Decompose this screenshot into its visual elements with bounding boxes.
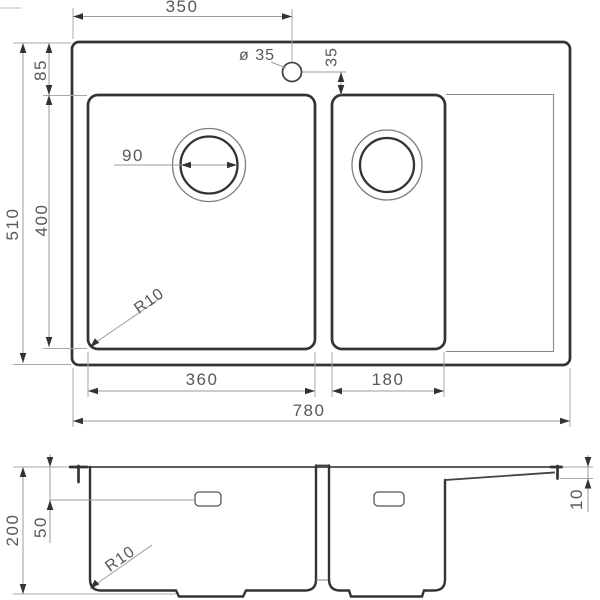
dim-rim-inset: 85 (31, 43, 52, 95)
section-half-bowl (329, 466, 445, 597)
dim-overall-width-label: 780 (293, 401, 326, 420)
dim-bowl-depth-label: 400 (32, 204, 51, 237)
dim-plan-corner-radius: R10 (90, 285, 168, 347)
dim-faucet-diameter-label: ø 35 (239, 47, 275, 64)
dim-overall-depth-label: 510 (3, 208, 22, 241)
plan-half-bowl (332, 95, 445, 349)
dim-plan-corner-radius-label: R10 (131, 285, 167, 317)
dim-overflow-offset-label: 50 (31, 516, 50, 538)
sink-technical-drawing: 350 ø 35 35 85 (0, 0, 600, 600)
dim-faucet-offset: 35 (302, 47, 346, 95)
dim-bowl-depth: 400 (32, 95, 52, 347)
dim-section-corner-radius-label: R10 (102, 543, 138, 575)
plan-outer-rim (72, 42, 570, 365)
faucet-hole (283, 63, 302, 82)
dim-half-bowl-width-label: 180 (372, 370, 405, 389)
dim-rim-inset-label: 85 (31, 59, 50, 81)
plan-drainboard-outline (446, 95, 554, 352)
section-drainboard-slope (445, 473, 554, 481)
half-drain-hole (360, 138, 414, 192)
section-view: 200 50 10 R10 (3, 454, 593, 597)
plan-view: 350 ø 35 35 85 (3, 0, 570, 427)
half-drain-flange (352, 130, 422, 200)
plan-main-bowl (88, 95, 315, 349)
dim-section-corner-radius: R10 (90, 543, 152, 589)
dim-faucet-diameter: ø 35 (239, 47, 286, 68)
dim-edge-drop-label: 10 (567, 488, 586, 510)
dim-overall-width: 780 (73, 401, 570, 424)
dim-overall-depth: 510 (3, 43, 26, 363)
main-bowl-overflow (195, 492, 221, 506)
dim-half-bowl-width: 180 (332, 370, 444, 394)
dim-section-depth-label: 200 (3, 514, 22, 547)
dim-main-bowl-width-label: 360 (186, 370, 219, 389)
dim-faucet-offset-label: 35 (324, 47, 341, 67)
drawing-canvas: 350 ø 35 35 85 (0, 0, 600, 600)
dim-top-width-label: 350 (166, 0, 199, 16)
half-bowl-overflow (374, 492, 404, 506)
section-main-bowl (90, 466, 316, 597)
dim-edge-drop: 10 (560, 455, 593, 512)
dim-main-bowl-width: 360 (88, 370, 315, 394)
dim-drain-diameter-label: 90 (122, 146, 144, 165)
